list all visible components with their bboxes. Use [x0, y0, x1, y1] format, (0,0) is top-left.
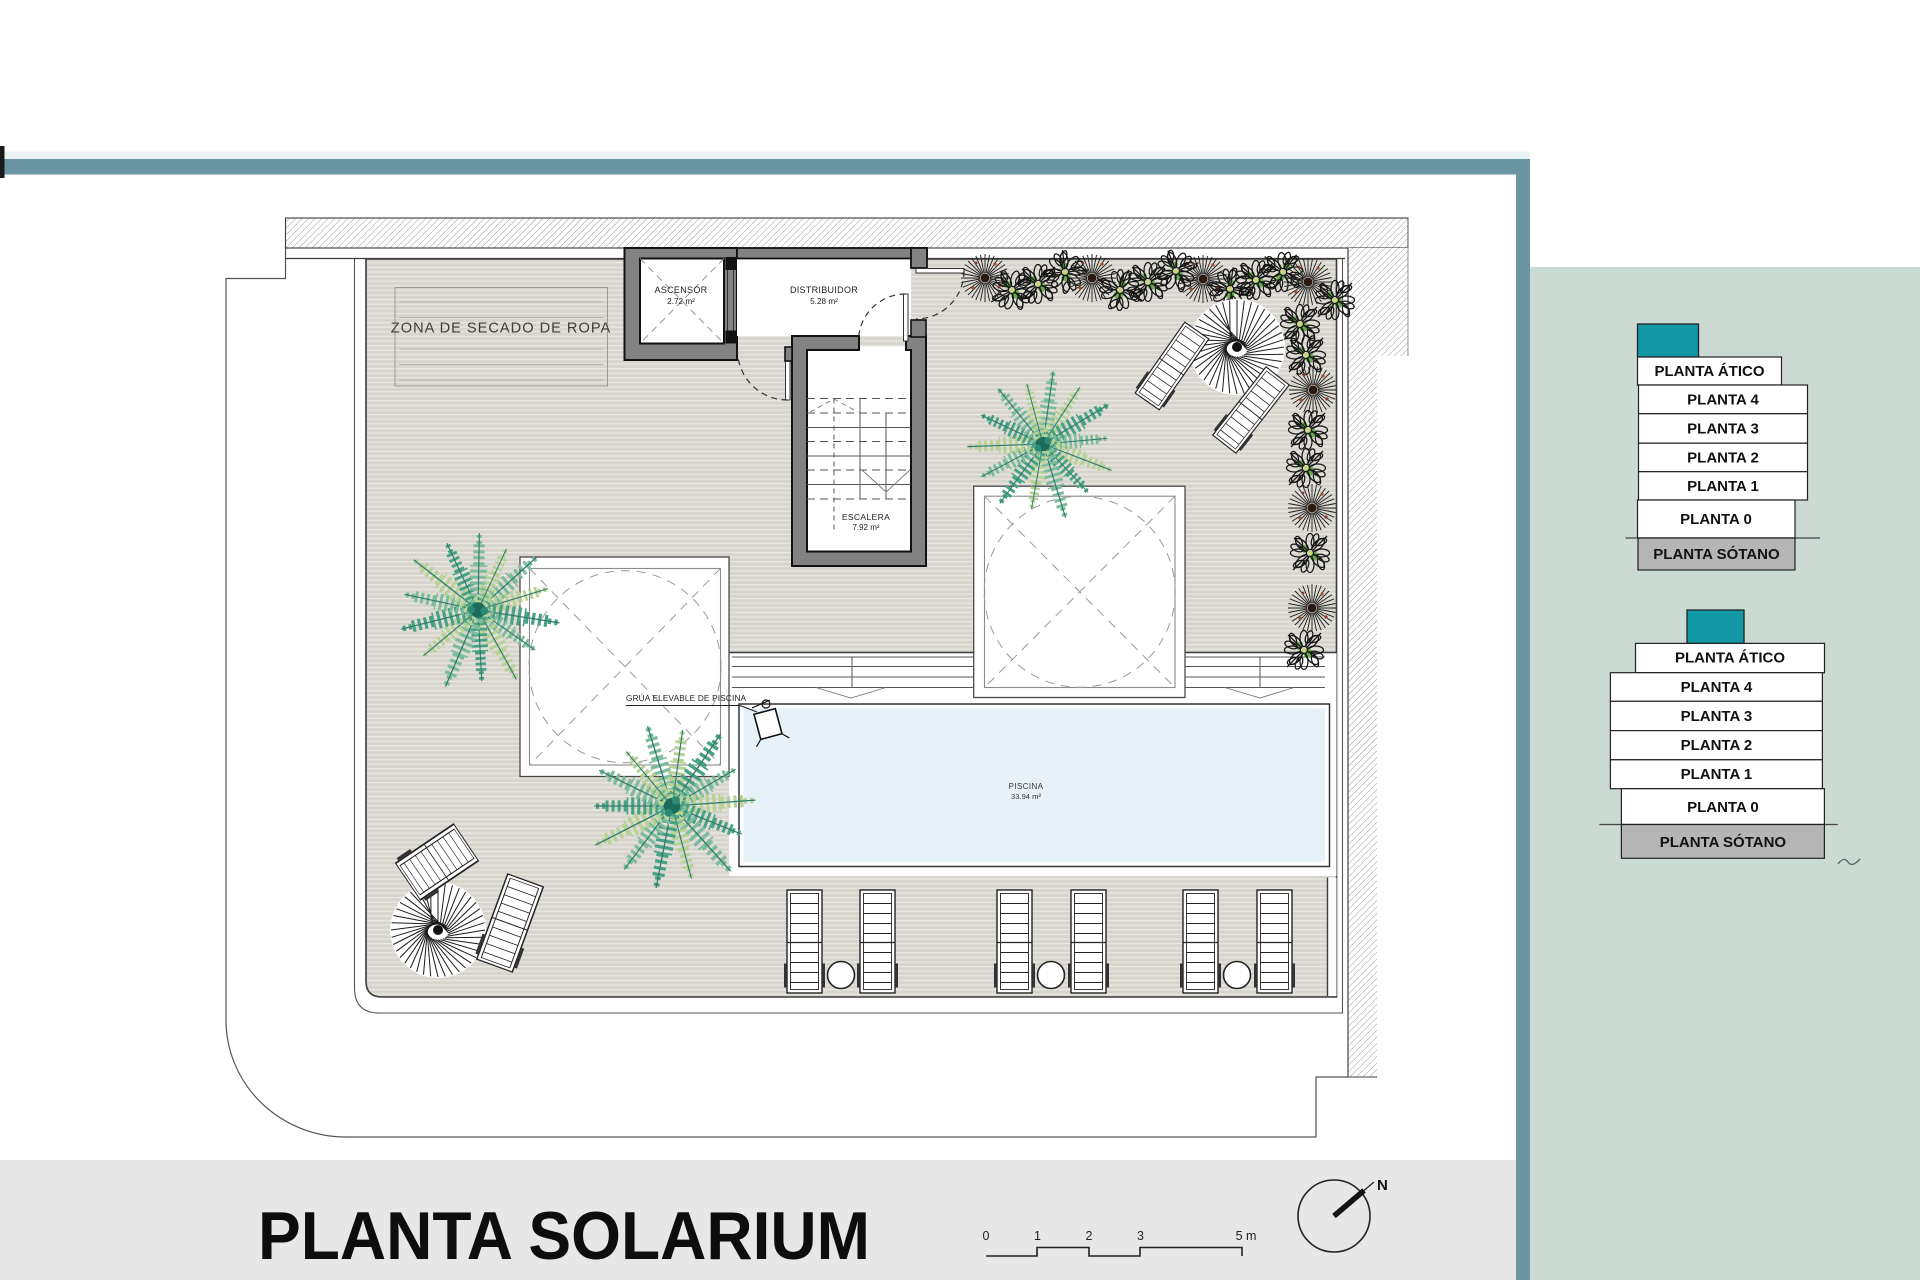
svg-text:5 m: 5 m — [1236, 1229, 1257, 1243]
svg-text:GRÚA ELEVABLE DE PISCINA: GRÚA ELEVABLE DE PISCINA — [626, 693, 747, 703]
svg-text:PLANTA 3: PLANTA 3 — [1681, 708, 1753, 725]
svg-text:5.28 m²: 5.28 m² — [810, 297, 838, 306]
svg-text:ESCALERA: ESCALERA — [842, 512, 890, 522]
svg-text:PLANTA 2: PLANTA 2 — [1687, 450, 1759, 467]
svg-text:2.72 m²: 2.72 m² — [667, 297, 695, 306]
svg-text:7.92 m²: 7.92 m² — [852, 523, 879, 532]
svg-text:ASCENSOR: ASCENSOR — [655, 285, 708, 295]
svg-text:PLANTA 3: PLANTA 3 — [1687, 421, 1759, 438]
svg-text:33.94 m²: 33.94 m² — [1011, 792, 1041, 801]
svg-text:PISCINA: PISCINA — [1009, 782, 1044, 791]
svg-text:N: N — [1377, 1177, 1388, 1194]
svg-text:PLANTA 2: PLANTA 2 — [1681, 737, 1753, 754]
svg-text:PLANTA 4: PLANTA 4 — [1681, 679, 1753, 696]
svg-text:2: 2 — [1086, 1229, 1093, 1243]
svg-text:PLANTA 1: PLANTA 1 — [1687, 478, 1759, 495]
svg-text:PLANTA ÁTICO: PLANTA ÁTICO — [1675, 650, 1785, 667]
svg-text:PLANTA SÓTANO: PLANTA SÓTANO — [1653, 545, 1780, 563]
svg-text:PLANTA 0: PLANTA 0 — [1680, 511, 1752, 528]
svg-text:ZONA DE SECADO DE ROPA: ZONA DE SECADO DE ROPA — [391, 321, 611, 337]
svg-text:PLANTA SOLARIUM: PLANTA SOLARIUM — [258, 1198, 870, 1274]
svg-text:3: 3 — [1137, 1229, 1144, 1243]
svg-text:PLANTA SÓTANO: PLANTA SÓTANO — [1660, 833, 1787, 851]
svg-text:1: 1 — [1034, 1229, 1041, 1243]
svg-text:PLANTA 4: PLANTA 4 — [1687, 392, 1759, 409]
svg-text:PLANTA 1: PLANTA 1 — [1681, 766, 1753, 783]
svg-text:0: 0 — [983, 1229, 990, 1243]
svg-text:DISTRIBUIDOR: DISTRIBUIDOR — [790, 285, 858, 295]
svg-text:PLANTA 0: PLANTA 0 — [1687, 799, 1759, 816]
svg-text:PLANTA ÁTICO: PLANTA ÁTICO — [1655, 363, 1765, 380]
